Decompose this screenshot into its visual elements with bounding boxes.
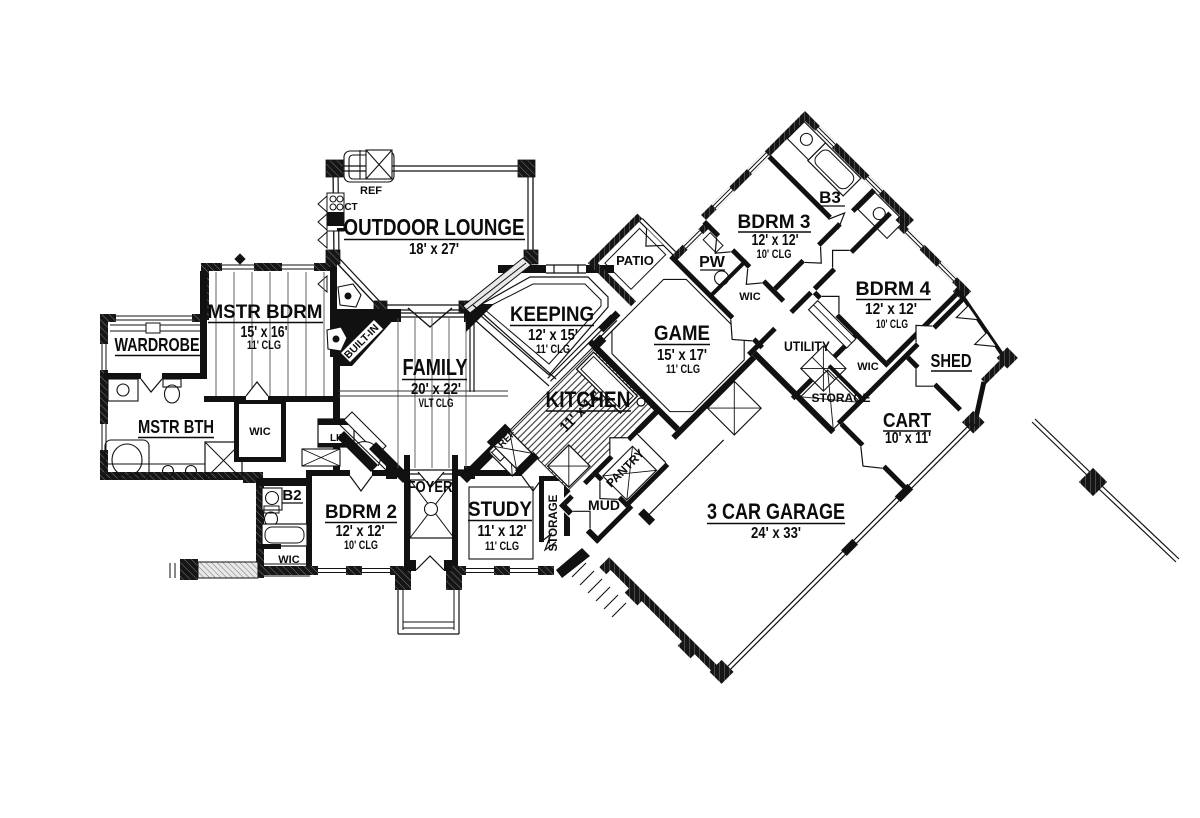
svg-text:MSTR BDRM: MSTR BDRM — [208, 302, 323, 323]
svg-text:WIC: WIC — [739, 291, 760, 303]
svg-text:11' CLG: 11' CLG — [666, 362, 700, 376]
svg-text:MUD: MUD — [588, 497, 620, 513]
svg-text:OUTDOOR LOUNGE: OUTDOOR LOUNGE — [344, 214, 525, 240]
svg-text:10' CLG: 10' CLG — [344, 538, 378, 552]
svg-text:SHED: SHED — [931, 351, 972, 371]
svg-text:24' x 33': 24' x 33' — [751, 525, 801, 542]
svg-text:FOYER: FOYER — [408, 479, 453, 496]
svg-text:11' CLG: 11' CLG — [485, 539, 519, 553]
svg-text:3 CAR GARAGE: 3 CAR GARAGE — [707, 499, 845, 524]
svg-text:WIC: WIC — [278, 554, 299, 566]
svg-text:18' x 27': 18' x 27' — [409, 241, 459, 258]
svg-text:10' CLG: 10' CLG — [876, 317, 908, 331]
svg-text:WIC: WIC — [249, 426, 270, 438]
svg-text:10' x 11': 10' x 11' — [885, 430, 931, 447]
svg-text:BDRM 3: BDRM 3 — [738, 212, 811, 233]
svg-text:STORAGE: STORAGE — [811, 391, 870, 405]
svg-text:FAMILY: FAMILY — [403, 354, 468, 380]
svg-text:GAME: GAME — [654, 322, 710, 345]
svg-text:10' CLG: 10' CLG — [757, 247, 792, 261]
svg-text:11' x 12': 11' x 12' — [478, 523, 527, 540]
svg-text:B2: B2 — [282, 487, 301, 504]
svg-text:PATIO: PATIO — [616, 253, 654, 268]
svg-text:11' CLG: 11' CLG — [247, 338, 281, 352]
svg-text:KEEPING: KEEPING — [510, 303, 594, 326]
svg-text:MSTR BTH: MSTR BTH — [138, 417, 214, 437]
svg-text:BDRM 4: BDRM 4 — [856, 279, 931, 300]
svg-text:VLT CLG: VLT CLG — [419, 396, 454, 410]
svg-text:11' CLG: 11' CLG — [536, 342, 570, 356]
svg-text:BDRM 2: BDRM 2 — [325, 502, 397, 523]
svg-text:WARDROBE: WARDROBE — [115, 335, 200, 355]
svg-text:CT: CT — [344, 202, 357, 213]
svg-text:PW: PW — [699, 254, 726, 271]
svg-text:CART: CART — [883, 410, 931, 432]
svg-text:STUDY: STUDY — [468, 498, 532, 521]
svg-text:B3: B3 — [819, 188, 841, 207]
svg-text:UTILITY: UTILITY — [784, 338, 831, 354]
svg-text:WIC: WIC — [857, 361, 878, 373]
svg-text:LIN: LIN — [330, 433, 346, 444]
svg-text:STORAGE: STORAGE — [548, 494, 560, 551]
svg-text:REF: REF — [360, 185, 382, 197]
svg-text:12' x 12': 12' x 12' — [865, 301, 917, 318]
